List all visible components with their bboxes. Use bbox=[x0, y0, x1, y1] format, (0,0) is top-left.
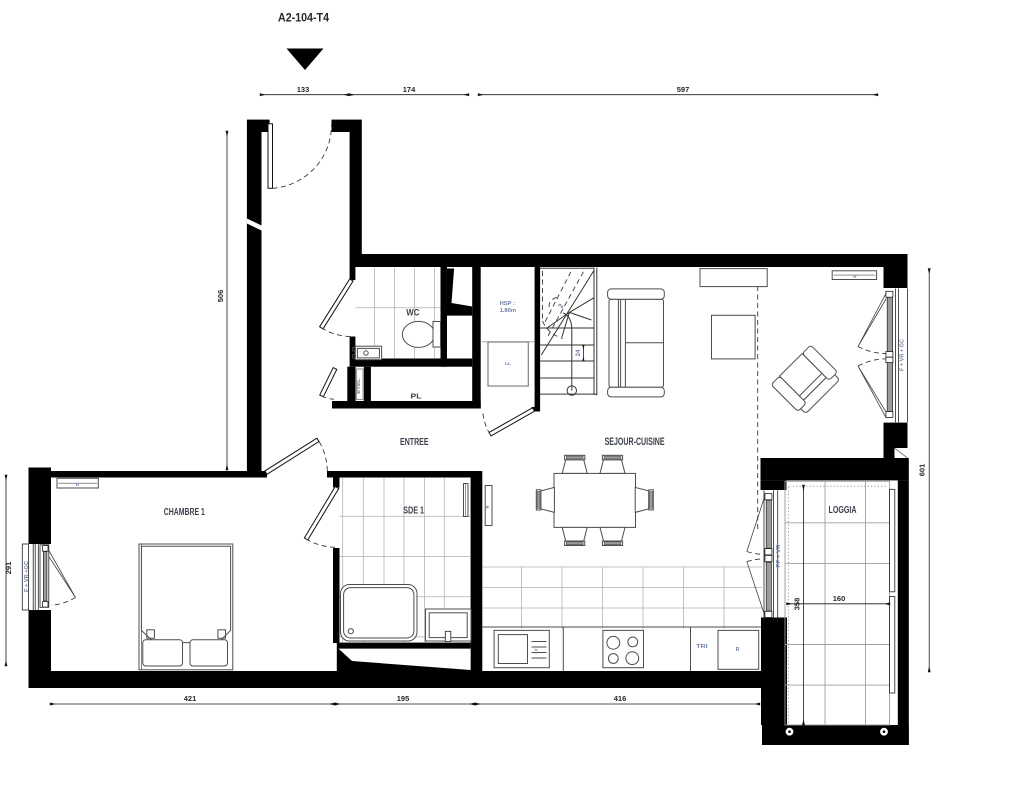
svg-text:24: 24 bbox=[576, 349, 582, 356]
svg-text:ETEL: ETEL bbox=[356, 378, 361, 394]
svg-text:HSP :: HSP : bbox=[500, 301, 515, 307]
svg-text:CHAMBRE 1: CHAMBRE 1 bbox=[164, 507, 205, 518]
svg-text:F + VR + GC: F + VR + GC bbox=[900, 339, 906, 371]
svg-text:421: 421 bbox=[184, 694, 197, 703]
svg-text:601: 601 bbox=[918, 464, 927, 477]
svg-text:WC: WC bbox=[406, 308, 420, 318]
svg-text:133: 133 bbox=[297, 85, 310, 94]
svg-text:LOGGIA: LOGGIA bbox=[829, 505, 857, 516]
svg-text:416: 416 bbox=[614, 694, 627, 703]
svg-text:LL: LL bbox=[505, 361, 511, 367]
svg-text:160: 160 bbox=[833, 594, 846, 603]
svg-text:174: 174 bbox=[403, 85, 416, 94]
svg-text:SDE 1: SDE 1 bbox=[403, 505, 424, 516]
svg-text:SEJOUR-CUISINE: SEJOUR-CUISINE bbox=[605, 436, 665, 448]
svg-text:597: 597 bbox=[677, 85, 690, 94]
svg-text:A2-104-T4: A2-104-T4 bbox=[278, 13, 330, 25]
svg-text:LV: LV bbox=[534, 648, 539, 653]
svg-text:F + VR +GC: F + VR +GC bbox=[24, 561, 30, 592]
svg-text:R: R bbox=[485, 505, 490, 508]
svg-text:506: 506 bbox=[216, 290, 225, 303]
svg-text:1.80m: 1.80m bbox=[500, 308, 516, 314]
svg-text:358: 358 bbox=[793, 598, 802, 611]
svg-text:R: R bbox=[736, 647, 740, 653]
svg-text:PL: PL bbox=[411, 391, 422, 400]
svg-text:195: 195 bbox=[397, 694, 410, 703]
svg-text:ENTREE: ENTREE bbox=[400, 437, 429, 448]
svg-text:291: 291 bbox=[4, 562, 13, 575]
svg-text:TRI: TRI bbox=[696, 644, 708, 650]
svg-text:PF + VR: PF + VR bbox=[776, 544, 782, 567]
